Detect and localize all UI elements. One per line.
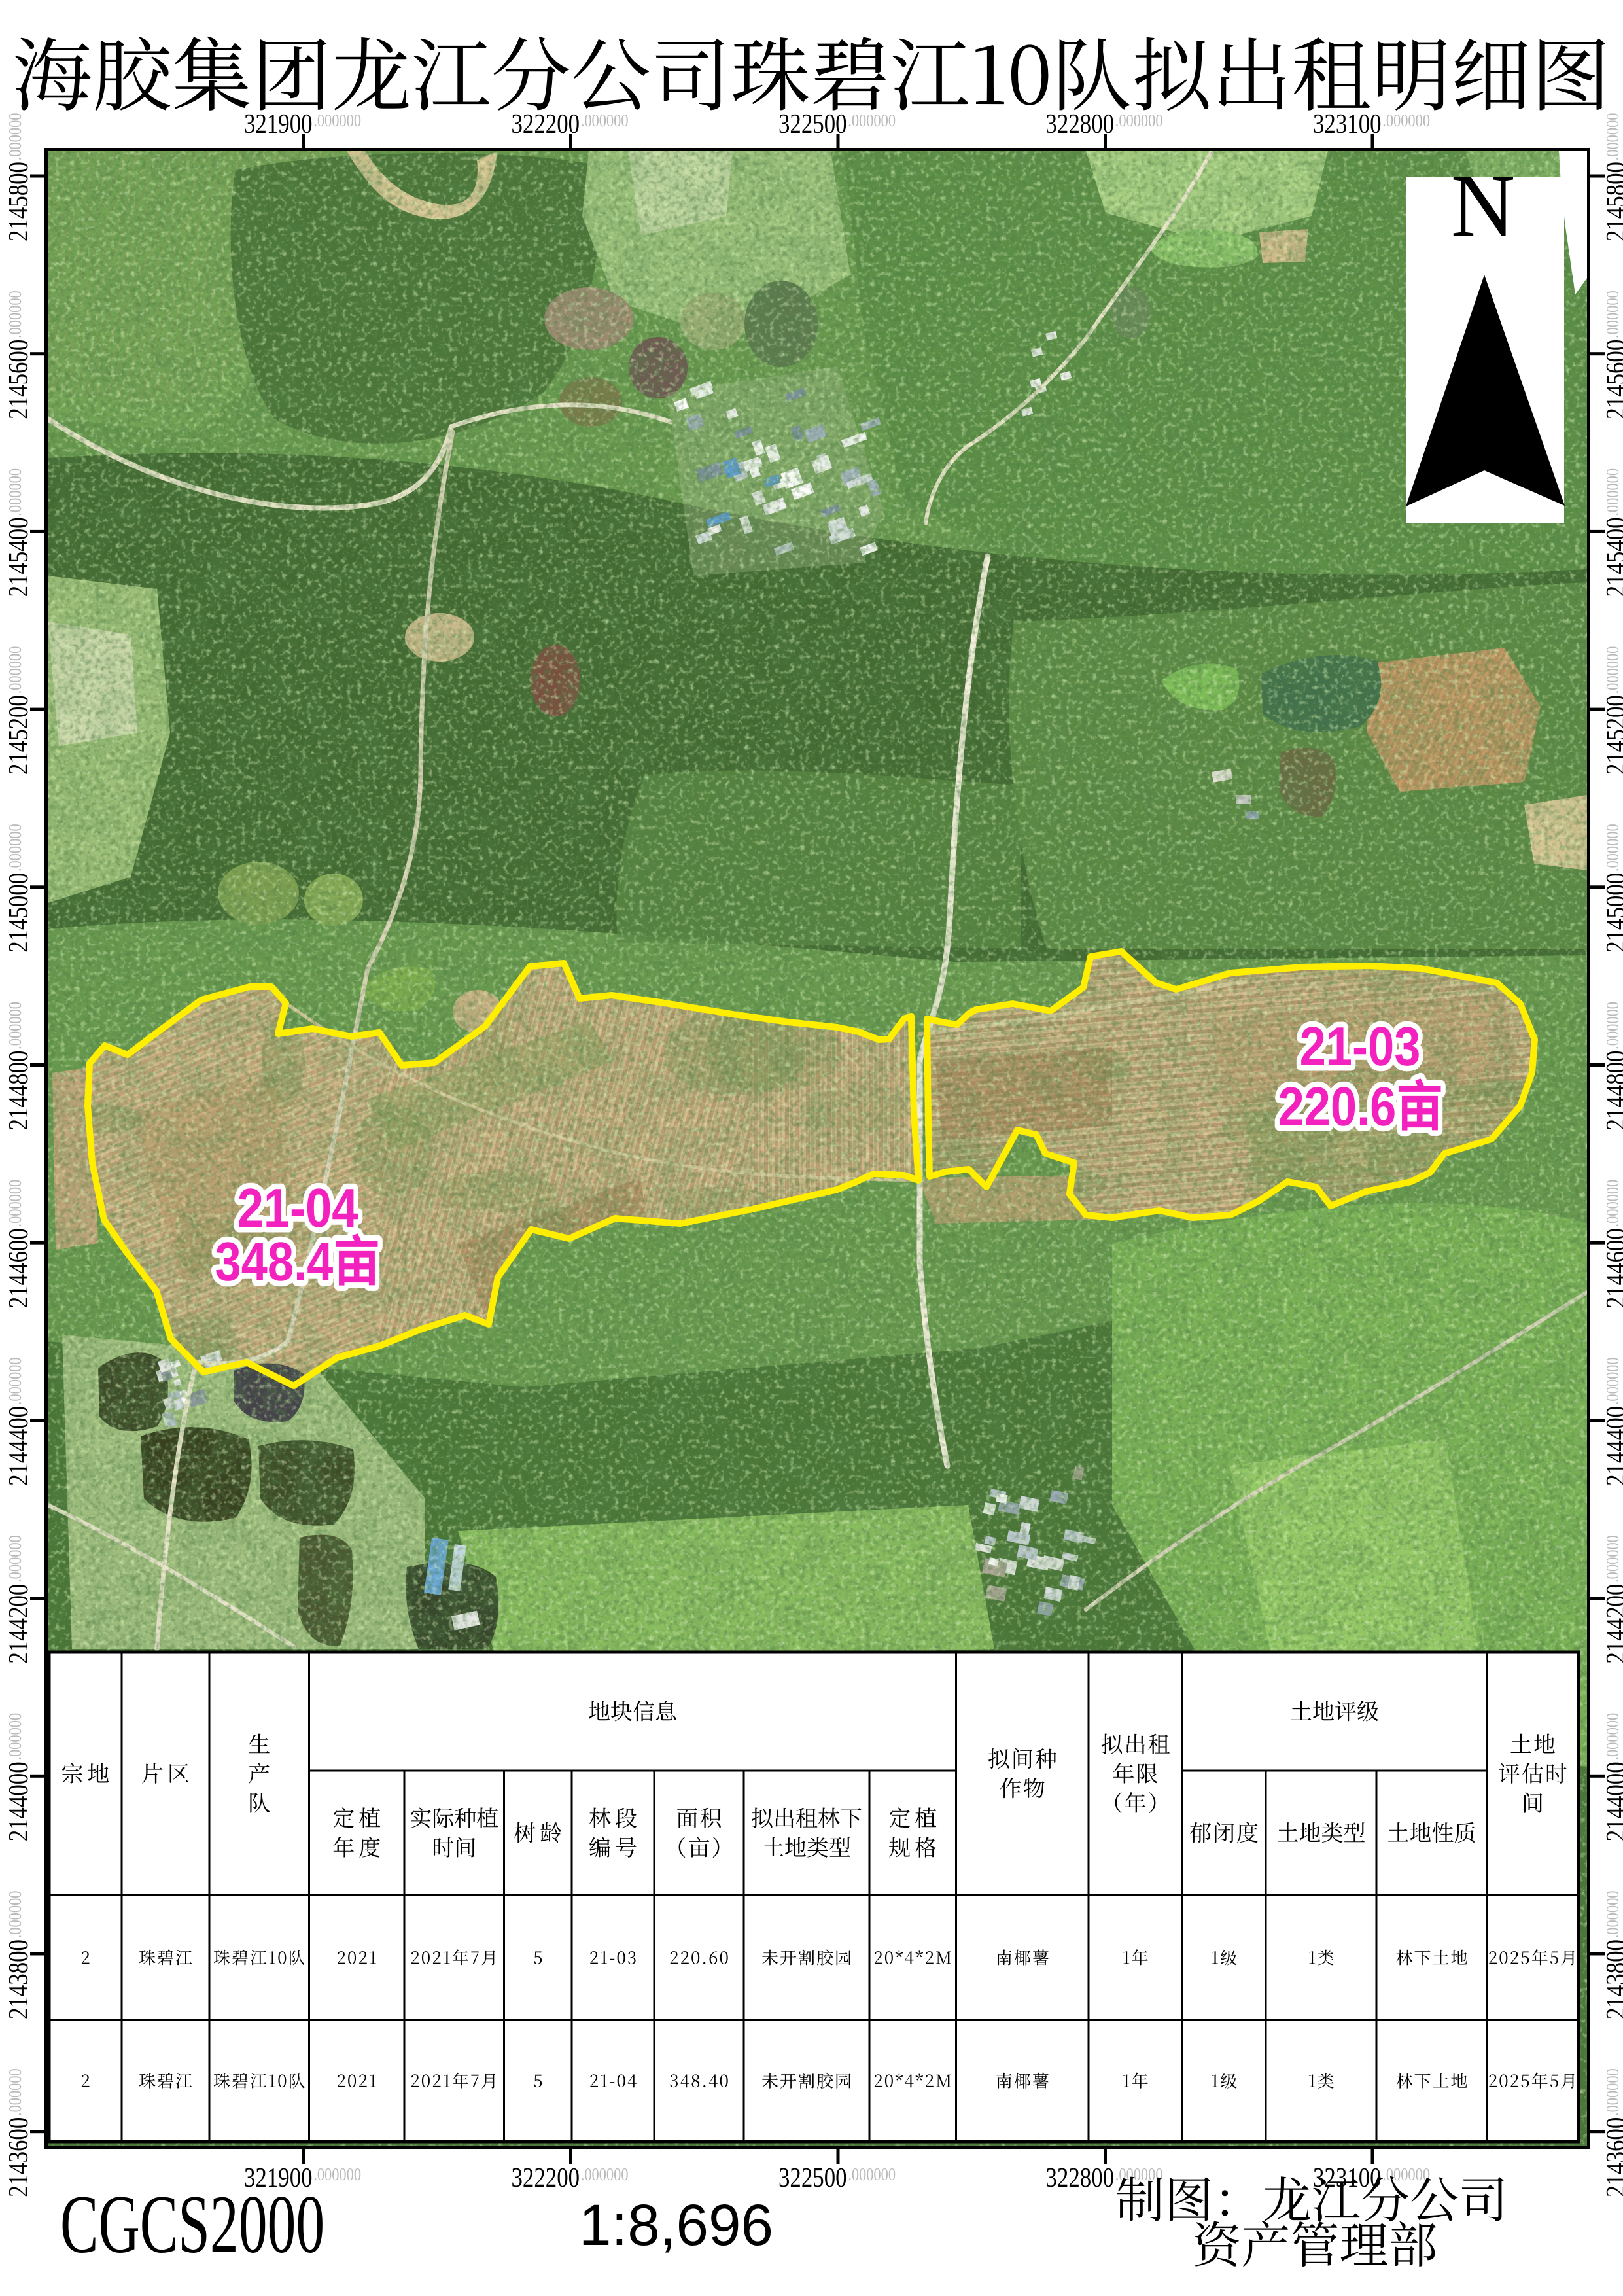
svg-text:322200: 322200 bbox=[512, 109, 580, 139]
svg-text:.000000: .000000 bbox=[1603, 1180, 1622, 1227]
svg-text:322200: 322200 bbox=[512, 2163, 580, 2193]
svg-text:2143600: 2143600 bbox=[1601, 2117, 1623, 2197]
svg-text:1:8,696: 1:8,696 bbox=[579, 2192, 773, 2257]
svg-text:.000000: .000000 bbox=[1382, 111, 1430, 130]
svg-text:.000000: .000000 bbox=[581, 2165, 629, 2184]
svg-text:.000000: .000000 bbox=[6, 646, 25, 694]
svg-text:.000000: .000000 bbox=[6, 1713, 25, 1761]
svg-text:322500: 322500 bbox=[778, 2163, 847, 2193]
svg-text:.000000: .000000 bbox=[1603, 113, 1622, 161]
svg-text:322500: 322500 bbox=[778, 109, 847, 139]
svg-text:.000000: .000000 bbox=[6, 291, 25, 338]
svg-text:N: N bbox=[1451, 157, 1515, 255]
svg-text:CGCS2000: CGCS2000 bbox=[60, 2178, 324, 2270]
svg-text:2144400: 2144400 bbox=[4, 1406, 34, 1486]
svg-text:.000000: .000000 bbox=[313, 111, 361, 130]
svg-text:.000000: .000000 bbox=[1603, 824, 1622, 872]
svg-text:.000000: .000000 bbox=[1382, 2165, 1430, 2184]
svg-text:2143600: 2143600 bbox=[4, 2117, 34, 2197]
svg-text:.000000: .000000 bbox=[1115, 111, 1163, 130]
svg-text:.000000: .000000 bbox=[6, 1180, 25, 1227]
svg-text:.000000: .000000 bbox=[6, 824, 25, 872]
svg-text:2144000: 2144000 bbox=[4, 1761, 34, 1841]
svg-text:.000000: .000000 bbox=[6, 1002, 25, 1050]
svg-text:322800: 322800 bbox=[1046, 2163, 1115, 2193]
svg-text:2144800: 2144800 bbox=[4, 1051, 34, 1131]
svg-text:2145000: 2145000 bbox=[4, 873, 34, 953]
svg-text:323100: 323100 bbox=[1313, 2163, 1382, 2193]
svg-text:2145400: 2145400 bbox=[1601, 517, 1623, 597]
svg-text:.000000: .000000 bbox=[6, 113, 25, 161]
svg-text:.000000: .000000 bbox=[6, 1891, 25, 1939]
svg-text:.000000: .000000 bbox=[1603, 1002, 1622, 1050]
svg-text:2145800: 2145800 bbox=[1601, 162, 1623, 241]
svg-text:2144600: 2144600 bbox=[4, 1228, 34, 1308]
svg-text:2145400: 2145400 bbox=[4, 517, 34, 597]
svg-text:2144800: 2144800 bbox=[1601, 1051, 1623, 1131]
svg-text:.000000: .000000 bbox=[6, 2068, 25, 2116]
svg-text:2144200: 2144200 bbox=[4, 1584, 34, 1664]
svg-text:.000000: .000000 bbox=[1603, 1713, 1622, 1761]
svg-text:322800: 322800 bbox=[1046, 109, 1115, 139]
svg-text:2144200: 2144200 bbox=[1601, 1584, 1623, 1664]
svg-text:.000000: .000000 bbox=[581, 111, 629, 130]
svg-text:.000000: .000000 bbox=[6, 1535, 25, 1583]
svg-text:.000000: .000000 bbox=[1603, 1357, 1622, 1405]
svg-text:2145800: 2145800 bbox=[4, 162, 34, 241]
svg-text:.000000: .000000 bbox=[1603, 646, 1622, 694]
svg-text:2145200: 2145200 bbox=[1601, 695, 1623, 775]
svg-text:.000000: .000000 bbox=[1603, 1535, 1622, 1583]
svg-text:2144600: 2144600 bbox=[1601, 1228, 1623, 1308]
svg-text:2143800: 2143800 bbox=[4, 1939, 34, 2019]
svg-text:2144000: 2144000 bbox=[1601, 1761, 1623, 1841]
svg-text:.000000: .000000 bbox=[6, 1357, 25, 1405]
svg-text:.000000: .000000 bbox=[1603, 2068, 1622, 2116]
svg-text:2143800: 2143800 bbox=[1601, 1939, 1623, 2019]
svg-text:321900: 321900 bbox=[244, 109, 313, 139]
svg-text:2145600: 2145600 bbox=[4, 340, 34, 419]
svg-text:.000000: .000000 bbox=[1603, 468, 1622, 516]
svg-text:.000000: .000000 bbox=[848, 2165, 896, 2184]
svg-text:.000000: .000000 bbox=[1603, 291, 1622, 338]
svg-text:323100: 323100 bbox=[1313, 109, 1382, 139]
svg-text:.000000: .000000 bbox=[1603, 1891, 1622, 1939]
svg-text:2145200: 2145200 bbox=[4, 695, 34, 775]
svg-text:2145000: 2145000 bbox=[1601, 873, 1623, 953]
svg-text:.000000: .000000 bbox=[6, 468, 25, 516]
svg-text:2145600: 2145600 bbox=[1601, 340, 1623, 419]
svg-text:.000000: .000000 bbox=[848, 111, 896, 130]
svg-text:2144400: 2144400 bbox=[1601, 1406, 1623, 1486]
